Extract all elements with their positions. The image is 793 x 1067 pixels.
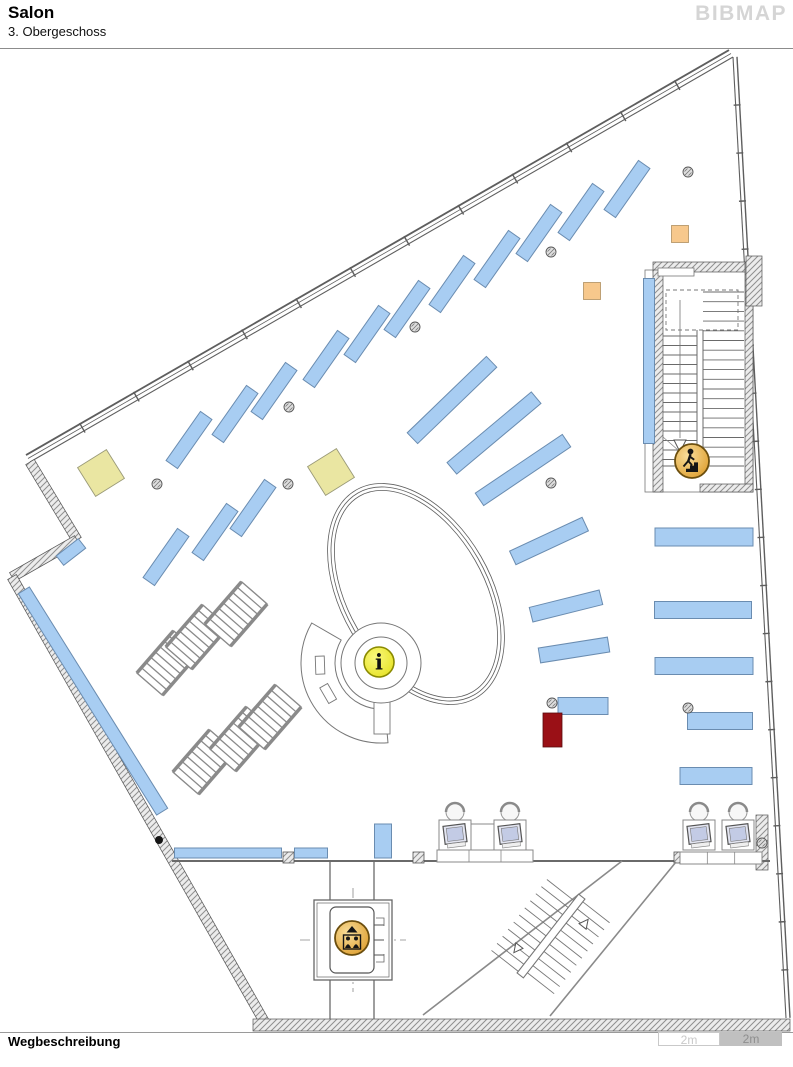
bookshelf [295,848,328,858]
map-scale-bar: 2m2m [658,1032,782,1046]
elevator-icon[interactable] [335,921,369,955]
bookshelf [384,280,430,337]
floorplan-map: i [0,0,793,1067]
column [546,478,556,488]
yellow-table [78,450,125,497]
bookshelf [192,503,238,560]
yellow-table [308,449,355,496]
route-description-label: Wegbeschreibung [8,1034,120,1049]
bookshelf [558,183,604,240]
bookshelf [230,479,276,536]
bookshelf [407,356,497,443]
bookshelf [604,160,650,217]
bookshelf [166,411,212,468]
bookshelf [655,528,753,546]
bookshelf [143,528,189,585]
lower-staircase [423,861,676,1016]
column [410,322,420,332]
computer-workstation [683,803,715,850]
bookshelf [175,848,282,858]
computer-workstation [494,803,526,850]
bookshelves [18,160,753,858]
orange-table [584,283,601,300]
bookshelf [510,517,589,564]
bookshelf [18,587,167,815]
info-desk [301,623,421,743]
bookshelf [558,698,608,715]
door-pivot [155,836,163,844]
column [683,167,693,177]
svg-text:i: i [375,650,383,675]
column [283,479,293,489]
bookshelf [655,658,753,675]
window-wall-north [26,50,733,462]
bookshelf [375,824,392,858]
bookshelf [538,637,609,663]
bookshelf [655,602,752,619]
info-icon[interactable]: i [364,647,394,677]
bookshelf [344,305,390,362]
opac-terminals-right [680,803,762,864]
bookshelf [688,713,753,730]
opac-terminals-center [437,803,533,862]
stairs-icon[interactable] [675,444,709,478]
column [284,402,294,412]
column [547,698,557,708]
bookshelf [644,279,655,444]
bookshelf [303,330,349,387]
red-shelf [543,713,562,747]
orange-table [672,226,689,243]
column [757,838,767,848]
computer-workstation [722,803,754,850]
scale-segment-light: 2m [658,1032,720,1046]
bookshelf [529,590,602,622]
bookshelf [680,768,752,785]
scale-segment-dark: 2m [720,1032,782,1046]
computer-workstation [439,803,471,850]
bookshelf [212,385,258,442]
column [546,247,556,257]
column [683,703,693,713]
bookshelf [429,255,475,312]
bookshelf [474,230,520,287]
column [152,479,162,489]
